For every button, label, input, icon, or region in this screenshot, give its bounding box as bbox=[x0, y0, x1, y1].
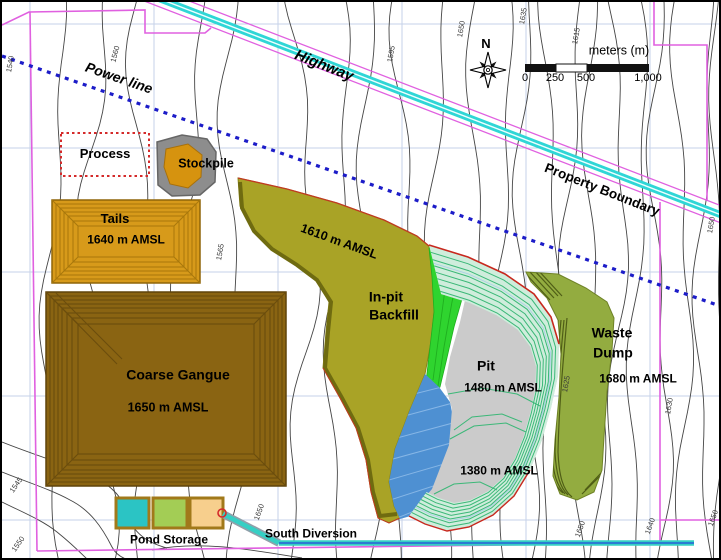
north-label: N bbox=[481, 37, 490, 51]
waste-dump-elevation-label: 1680 m AMSL bbox=[599, 373, 677, 386]
south-diversion-label: South Diversion bbox=[265, 528, 357, 541]
tails-elevation-label: 1640 m AMSL bbox=[87, 234, 165, 247]
stockpile-label: Stockpile bbox=[178, 157, 234, 170]
waste-dump-label-line2: Dump bbox=[593, 346, 633, 361]
pit-label: Pit bbox=[477, 359, 495, 374]
mine-site-map: Power line Highway Property Boundary Pro… bbox=[0, 0, 721, 560]
scale-tick-0: 0 bbox=[522, 73, 528, 85]
pond-storage-label: Pond Storage bbox=[130, 534, 208, 547]
tails-label: Tails bbox=[101, 212, 130, 226]
process-label: Process bbox=[80, 147, 131, 161]
coarse-gangue-facility-shape bbox=[46, 292, 286, 486]
compass-rose-icon bbox=[470, 52, 506, 88]
pit-upper-elevation-label: 1480 m AMSL bbox=[464, 382, 542, 395]
site-map-canvas bbox=[2, 2, 721, 560]
pit-lower-elevation-label: 1380 m AMSL bbox=[460, 465, 538, 478]
inpit-backfill-label-line1: In-pit bbox=[369, 290, 403, 305]
inpit-backfill-label-line2: Backfill bbox=[369, 308, 419, 323]
coarse-gangue-elevation-label: 1650 m AMSL bbox=[128, 401, 209, 414]
coarse-gangue-label: Coarse Gangue bbox=[126, 368, 229, 383]
scale-tick-250: 250 bbox=[546, 73, 564, 85]
scale-tick-500: 500 bbox=[577, 73, 595, 85]
scale-unit-label: meters (m) bbox=[589, 44, 649, 57]
pond-storage-cells bbox=[116, 498, 223, 528]
scale-bar bbox=[525, 64, 649, 72]
scale-tick-1000: 1,000 bbox=[634, 73, 662, 85]
waste-dump-label-line1: Waste bbox=[592, 326, 633, 341]
